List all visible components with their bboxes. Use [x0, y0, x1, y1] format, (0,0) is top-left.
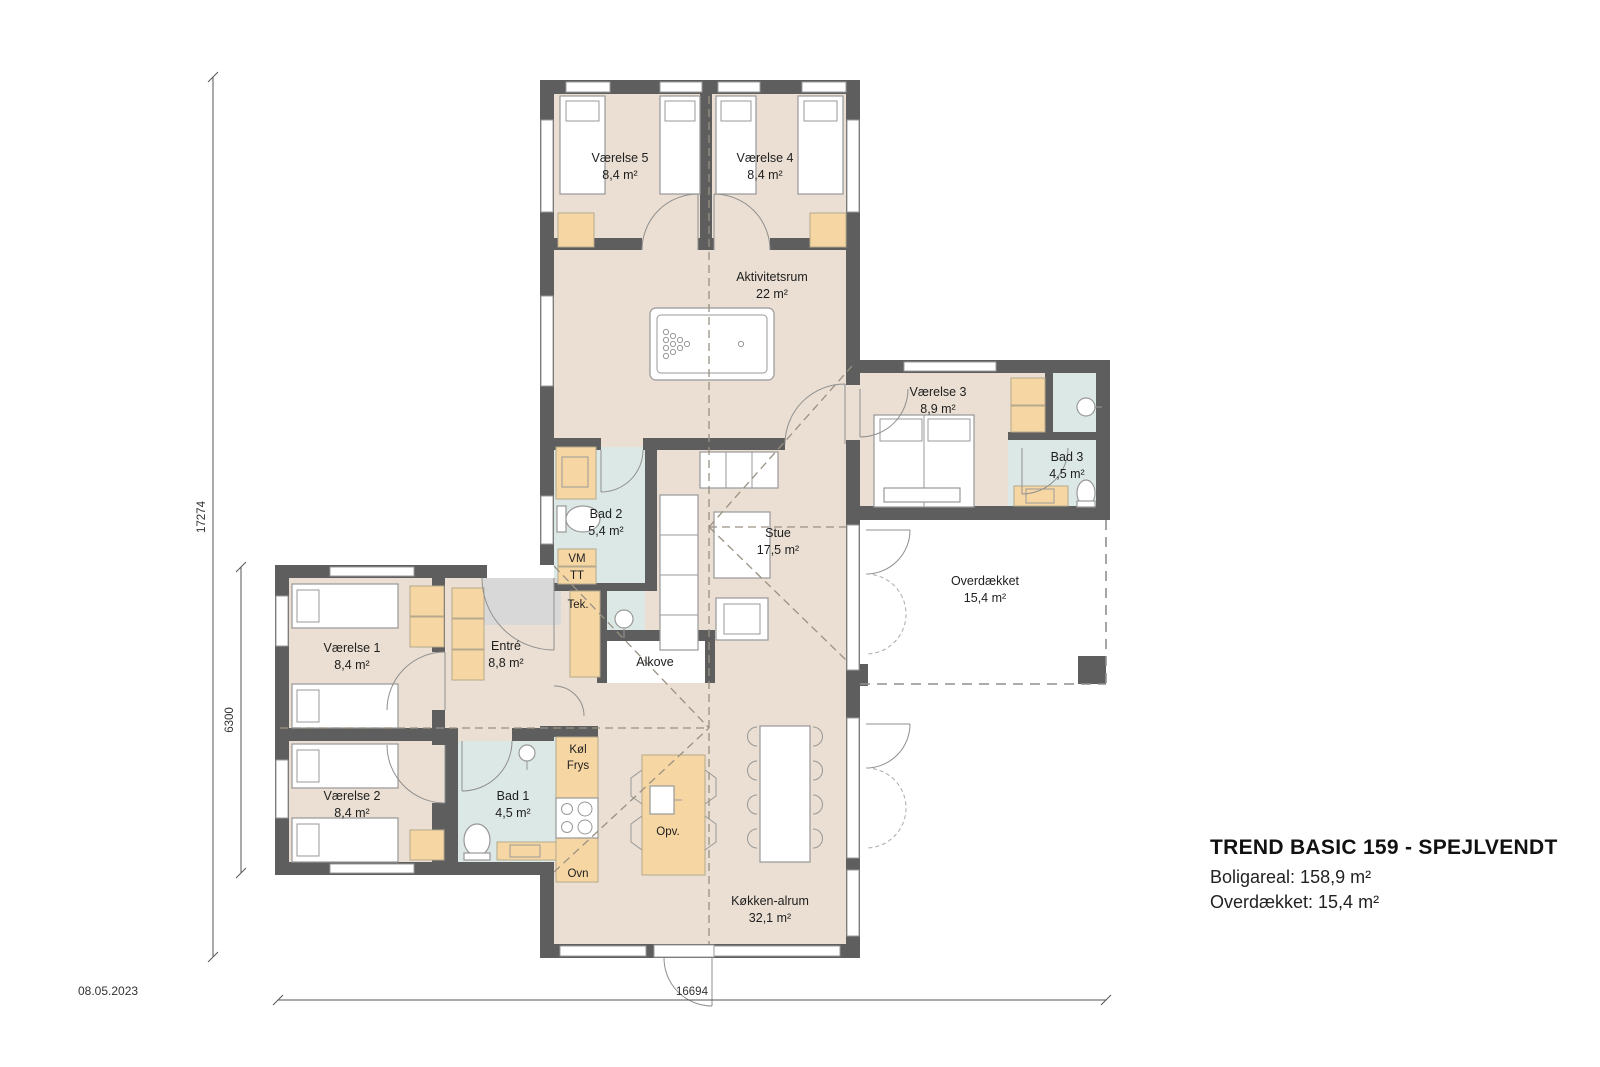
wall-segment	[289, 728, 432, 741]
appliance-label-ovn: Ovn	[567, 868, 588, 880]
pedestal-sink	[519, 745, 535, 761]
room-area-bad2: 5,4 m²	[588, 524, 623, 538]
island-sink	[650, 786, 674, 814]
wall-segment	[643, 438, 785, 450]
appliance-label-opv: Opv.	[656, 826, 679, 838]
room-area-stue: 17,5 m²	[757, 543, 799, 557]
bed	[292, 684, 398, 728]
door-arc-terrace-front	[664, 958, 712, 1006]
wall-segment	[512, 728, 554, 741]
toilet	[464, 824, 490, 856]
sofa	[700, 452, 778, 488]
room-label-vaerelse2: Værelse 2	[324, 789, 381, 803]
room-label-stue: Stue	[765, 526, 791, 540]
wall-segment	[698, 238, 714, 250]
window	[847, 120, 859, 212]
wall-segment	[700, 94, 712, 238]
window	[541, 496, 553, 544]
wall-segment	[1096, 360, 1110, 520]
window	[276, 760, 288, 818]
floor-door-connector	[846, 385, 860, 440]
dining-table	[760, 726, 810, 862]
room-label-bad3: Bad 3	[1051, 450, 1084, 464]
billiard-outer	[650, 308, 774, 380]
bed	[798, 96, 843, 194]
door-opening	[654, 945, 714, 957]
room-area-vaerelse1: 8,4 m²	[334, 658, 369, 672]
room-label-vaerelse3: Værelse 3	[910, 385, 967, 399]
plan-title: TREND BASIC 159 - SPEJLVENDT	[1210, 836, 1590, 860]
closet	[558, 213, 594, 247]
wall-segment	[705, 641, 715, 683]
kitchen-island	[642, 755, 705, 875]
room-label-tek: Tek.	[567, 599, 588, 611]
title-block: TREND BASIC 159 - SPEJLVENDT Boligareal:…	[1210, 836, 1590, 913]
wall-segment	[846, 440, 860, 506]
door-arc-stue-terrace	[866, 530, 910, 574]
room-area-entre: 8,8 m²	[488, 656, 523, 670]
wall-segment	[445, 728, 458, 741]
floorplan-page: Værelse 5 8,4 m² Værelse 4 8,4 m² Aktivi…	[0, 0, 1600, 1067]
room-label-aktivitetsrum: Aktivitetsrum	[736, 270, 808, 284]
closet	[1011, 378, 1045, 405]
toilet-tank	[1077, 501, 1095, 507]
room-label-vaerelse1: Værelse 1	[324, 641, 381, 655]
appliance-label-frys: Frys	[567, 760, 590, 772]
room-area-koekken: 32,1 m²	[749, 911, 791, 925]
closet	[410, 617, 444, 647]
room-area-vaerelse4: 8,4 m²	[747, 168, 782, 182]
closet	[810, 213, 846, 247]
plan-boligareal: Boligareal: 158,9 m²	[1210, 867, 1590, 888]
toilet-tank	[557, 506, 566, 532]
terrace-column	[1078, 656, 1106, 684]
bed	[292, 818, 398, 862]
window	[330, 864, 414, 873]
room-label-bad1: Bad 1	[497, 789, 530, 803]
window	[718, 82, 760, 92]
wall-segment	[846, 506, 1110, 520]
appliance-label-vm: VM	[568, 553, 585, 565]
cooktop	[556, 798, 598, 838]
dimension-value-total-height: 17274	[196, 500, 208, 533]
room-label-entre: Entré	[491, 639, 521, 653]
wardrobe	[452, 650, 484, 680]
glass-door	[847, 525, 859, 670]
room-area-bad1: 4,5 m²	[495, 806, 530, 820]
floor-entrance-mat	[483, 578, 561, 625]
closet	[410, 830, 444, 860]
sofa	[660, 495, 698, 650]
room-label-vaerelse5: Værelse 5	[592, 151, 649, 165]
room-area-bad3: 4,5 m²	[1049, 467, 1084, 481]
closet	[410, 586, 444, 616]
room-label-overdaekket: Overdækket	[951, 574, 1020, 588]
door-arc-stue-terrace-dashed	[866, 574, 906, 654]
window	[566, 82, 610, 92]
room-area-aktivitetsrum: 22 m²	[756, 287, 788, 301]
bed-bench	[884, 488, 960, 502]
room-label-vaerelse4: Værelse 4	[737, 151, 794, 165]
wall-segment	[600, 590, 607, 637]
window	[904, 362, 996, 371]
door-arc-kitchen-terrace-dashed	[866, 768, 906, 848]
bed	[292, 744, 398, 788]
room-area-vaerelse5: 8,4 m²	[602, 168, 637, 182]
window	[714, 946, 840, 956]
bed	[560, 96, 605, 194]
room-area-overdaekket: 15,4 m²	[964, 591, 1006, 605]
toilet-tank	[464, 853, 490, 860]
wardrobe	[452, 619, 484, 649]
window	[541, 120, 553, 212]
room-label-bad2: Bad 2	[590, 507, 623, 521]
dimension-value-total-width: 16694	[676, 986, 709, 998]
bed	[660, 96, 700, 194]
room-label-alkove: Alkove	[636, 655, 674, 669]
window	[330, 567, 414, 576]
washbasin	[1077, 398, 1095, 416]
wall-segment	[445, 741, 458, 862]
appliance-label-koel: Køl	[569, 744, 586, 756]
door-arc-kitchen-terrace	[866, 724, 910, 768]
plan-overdaekket: Overdækket: 15,4 m²	[1210, 892, 1590, 913]
wall-segment	[846, 373, 860, 385]
plan-date: 08.05.2023	[78, 984, 138, 998]
closet	[1011, 406, 1045, 432]
pedestal-sink	[615, 610, 633, 628]
window	[847, 870, 859, 936]
wall-segment	[1045, 373, 1053, 432]
room-area-vaerelse2: 8,4 m²	[334, 806, 369, 820]
room-label-koekken: Køkken-alrum	[731, 894, 809, 908]
wall-segment	[645, 450, 657, 583]
window	[802, 82, 846, 92]
bed	[292, 584, 398, 628]
dimension-value-wing-height: 6300	[224, 707, 236, 733]
appliance-label-tt: TT	[570, 570, 584, 582]
billiard-table	[650, 308, 774, 380]
window	[541, 296, 553, 386]
wardrobe	[452, 588, 484, 618]
room-area-vaerelse3: 8,9 m²	[920, 402, 955, 416]
wall-segment	[1008, 432, 1096, 440]
glass-door	[847, 718, 859, 858]
window	[560, 946, 646, 956]
window	[276, 596, 288, 646]
window	[660, 82, 702, 92]
